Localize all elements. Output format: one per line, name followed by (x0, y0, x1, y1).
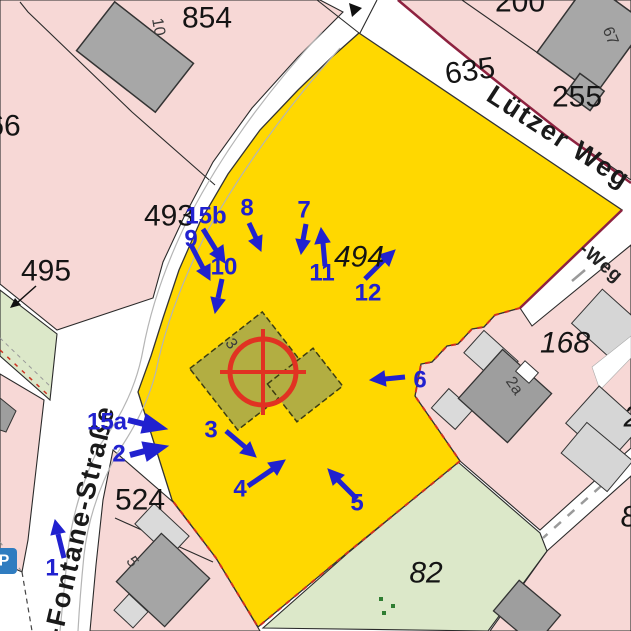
parcel-number-82: 82 (409, 557, 443, 590)
building-number-10: 10 (148, 17, 168, 38)
marker-label-6[interactable]: 6 (413, 367, 426, 394)
parcel-number-255: 255 (552, 81, 602, 114)
parcel-number-168: 168 (540, 327, 590, 360)
marker-label-5[interactable]: 5 (350, 490, 363, 517)
marker-label-4[interactable]: 4 (233, 476, 247, 503)
map-canvas[interactable]: P 854 200 255 635 66 495 493 494 168 524… (0, 0, 631, 631)
marker-label-11[interactable]: 11 (309, 260, 334, 287)
arrow-15a[interactable] (128, 420, 144, 424)
marker-label-10[interactable]: 10 (211, 254, 238, 281)
marker-label-1[interactable]: 1 (45, 555, 58, 582)
arrow-6[interactable] (385, 377, 405, 379)
parking-icon: P (0, 548, 17, 574)
parcel-number-524: 524 (115, 484, 165, 517)
parcel-number-635: 635 (443, 51, 497, 91)
svg-text:P: P (0, 553, 10, 570)
marker-label-7[interactable]: 7 (297, 197, 310, 224)
marker-label-15a[interactable]: 15a (87, 409, 128, 436)
marker-label-9[interactable]: 9 (184, 226, 197, 253)
arrow-7[interactable] (303, 224, 306, 240)
parcel-number-66: 66 (0, 110, 21, 143)
arrow-2[interactable] (130, 451, 145, 455)
marker-label-3[interactable]: 3 (204, 417, 217, 444)
parcel-number-partial-2: 2 (623, 401, 631, 434)
parcel-number-200: 200 (495, 0, 545, 19)
marker-label-12[interactable]: 12 (355, 280, 382, 307)
marker-label-8[interactable]: 8 (240, 195, 253, 222)
parcel-number-854: 854 (182, 2, 232, 35)
marker-label-2[interactable]: 2 (112, 441, 125, 468)
parcel-number-494: 494 (334, 241, 384, 274)
parcel-number-partial-8: 8 (621, 501, 631, 534)
marker-label-15b[interactable]: 15b (185, 203, 226, 230)
parcel-number-495: 495 (21, 255, 71, 288)
